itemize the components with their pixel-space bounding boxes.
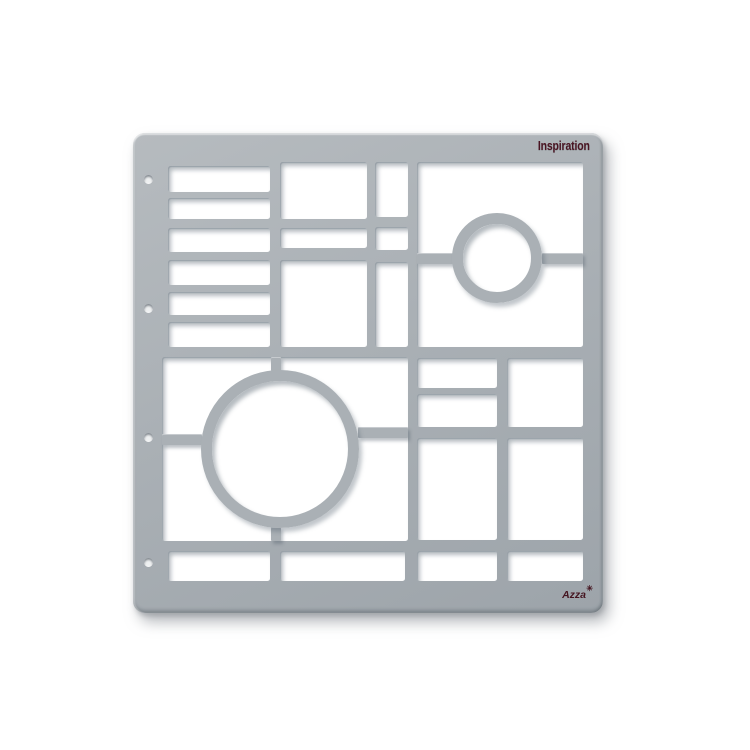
cutout (280, 162, 367, 219)
bridge-bar (542, 253, 583, 264)
binder-hole (144, 558, 153, 567)
cutout (168, 292, 270, 315)
cutout (168, 551, 270, 581)
cutout (507, 551, 583, 581)
cutout (168, 260, 270, 285)
bridge-bar (417, 253, 453, 264)
bridge-bar (271, 357, 281, 371)
cutout (168, 166, 270, 192)
cutout (280, 551, 405, 581)
cutout (417, 551, 497, 581)
cutout (168, 198, 270, 219)
cutout (375, 227, 408, 250)
cutout (375, 262, 408, 347)
product-photo-page: Inspiration Azza ✳ (0, 0, 750, 750)
bridge-bar (271, 527, 281, 541)
sparkle-icon: ✳ (586, 584, 593, 594)
brand-logo: Azza ✳ (562, 590, 586, 600)
stencil-board: Inspiration Azza ✳ (133, 133, 603, 613)
cutout (417, 438, 497, 540)
cutout (280, 228, 367, 248)
bridge-bar (162, 434, 202, 445)
cutout (168, 322, 270, 347)
circle-ring-cutout (201, 370, 359, 528)
circle-ring-cutout (452, 213, 542, 303)
cutout (280, 260, 367, 347)
binder-hole (144, 304, 153, 313)
cutout (168, 228, 270, 252)
brand-name: Azza (562, 589, 586, 601)
bridge-bar (358, 427, 408, 438)
cutout (375, 162, 408, 217)
binder-hole (144, 433, 153, 442)
cutout (417, 358, 497, 388)
stencil-title: Inspiration (538, 139, 590, 153)
cutout (507, 358, 583, 427)
binder-hole (144, 175, 153, 184)
cutout (417, 394, 497, 427)
cutout (507, 438, 583, 540)
